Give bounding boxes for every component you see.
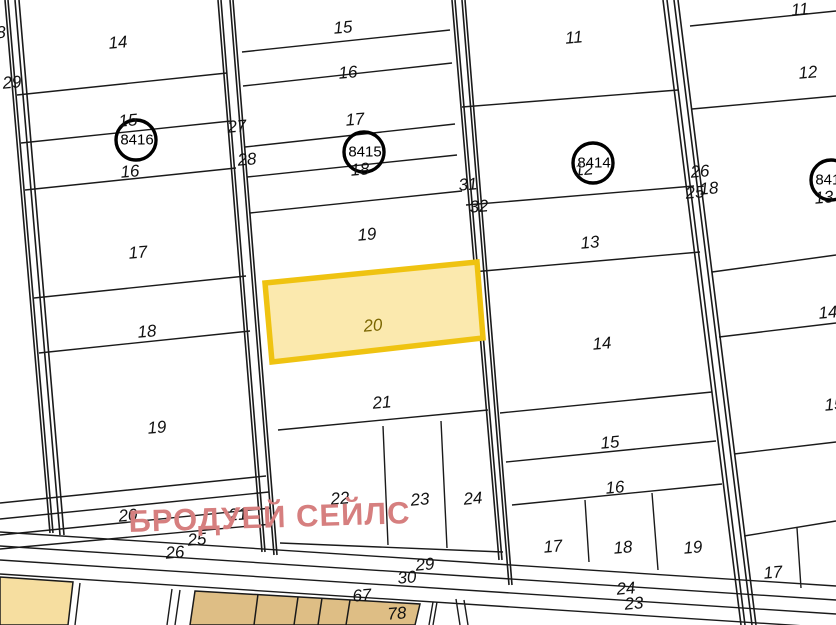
block-number-8416: 8416 <box>120 132 153 149</box>
highlighted-parcel-label: 20 <box>363 315 384 337</box>
block-number-8415: 8415 <box>348 144 381 161</box>
block-number-8413: 8413 <box>815 172 836 189</box>
cadastral-map[interactable]: 8 29 14 15 16 27 28 17 18 19 20 21 25 26… <box>0 0 836 625</box>
block-number-8414: 8414 <box>577 155 610 172</box>
highlighted-parcel[interactable] <box>265 262 483 362</box>
cadastral-linework <box>0 0 836 625</box>
tan-parcel <box>0 577 73 625</box>
tan-parcel-block <box>190 591 420 625</box>
